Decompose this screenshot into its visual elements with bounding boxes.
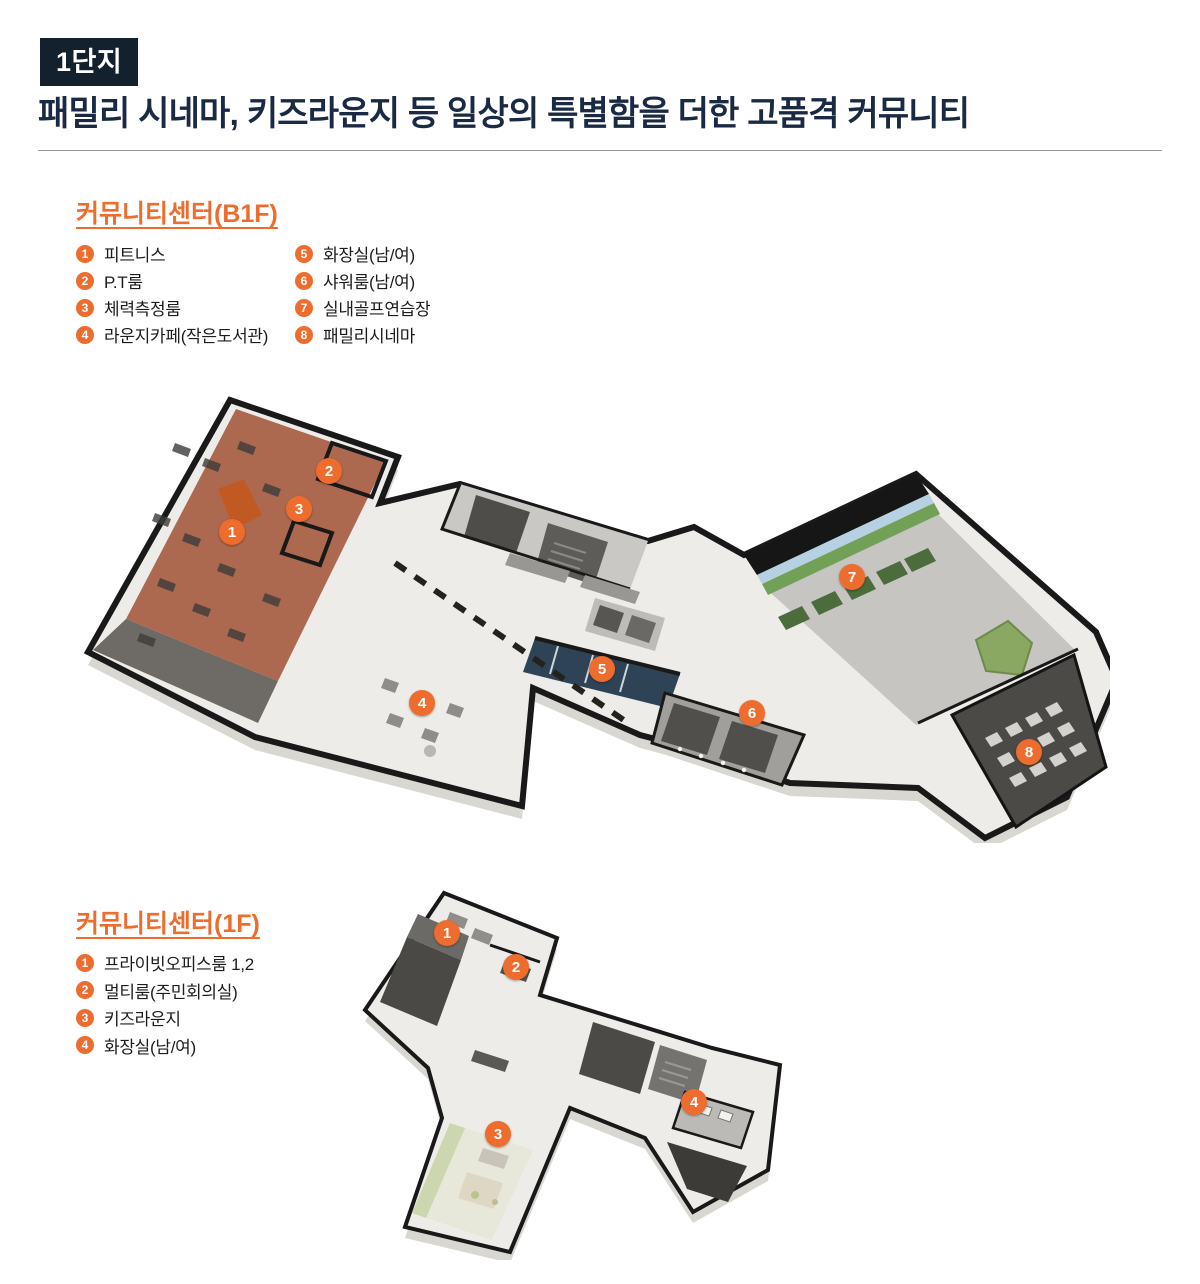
b1f-marker-layer: 12345678 [80,393,1110,843]
b1f-plan-marker-4: 4 [409,690,435,716]
b1f-legend-item-8: 8 패밀리시네마 [295,321,430,348]
divider [38,150,1162,151]
page-title: 패밀리 시네마, 키즈라운지 등 일상의 특별함을 더한 고품격 커뮤니티 [38,86,969,135]
b1f-plan-marker-7: 7 [839,564,865,590]
b1f-legend-label-3: 체력측정룸 [104,295,181,320]
f1-legend-item-1: 1 프라이빗오피스룸 1,2 [76,949,254,977]
b1f-plan-marker-6: 6 [739,700,765,726]
b1f-legend-number-2: 2 [76,272,94,290]
b1f-legend-item-3: 3 체력측정룸 [76,294,295,321]
b1f-legend-item-6: 6 샤워룸(남/여) [295,267,430,294]
f1-legend-number-1: 1 [76,954,94,972]
b1f-legend-number-3: 3 [76,299,94,317]
b1f-floorplan: 12345678 [80,393,1110,843]
b1f-legend-label-8: 패밀리시네마 [323,322,415,347]
b1f-legend-number-6: 6 [295,272,313,290]
b1f-legend: 1 피트니스 2 P.T룸 3 체력측정룸 4 라운지카페(작은도서관) 5 화… [76,240,430,348]
b1f-section-heading: 커뮤니티센터(B1F) [76,194,278,230]
b1f-plan-marker-1: 1 [219,519,245,545]
f1-floorplan: 1234 [355,880,800,1260]
f1-legend-label-2: 멀티룸(주민회의실) [104,978,237,1003]
f1-marker-layer: 1234 [355,880,800,1260]
f1-legend-label-4: 화장실(남/여) [104,1033,196,1058]
f1-legend: 1 프라이빗오피스룸 1,2 2 멀티룸(주민회의실) 3 키즈라운지 4 화장… [76,949,254,1059]
f1-plan-marker-4: 4 [681,1089,707,1115]
f1-plan-marker-3: 3 [485,1121,511,1147]
b1f-legend-number-8: 8 [295,326,313,344]
b1f-legend-item-5: 5 화장실(남/여) [295,240,430,267]
b1f-plan-marker-2: 2 [316,458,342,484]
b1f-legend-item-2: 2 P.T룸 [76,267,295,294]
b1f-legend-label-5: 화장실(남/여) [323,241,415,266]
b1f-legend-number-1: 1 [76,245,94,263]
f1-legend-item-2: 2 멀티룸(주민회의실) [76,977,254,1005]
b1f-legend-item-4: 4 라운지카페(작은도서관) [76,321,295,348]
b1f-legend-item-7: 7 실내골프연습장 [295,294,430,321]
f1-section-heading: 커뮤니티센터(1F) [76,904,260,940]
b1f-legend-label-2: P.T룸 [104,268,143,293]
f1-legend-number-2: 2 [76,981,94,999]
f1-legend-label-3: 키즈라운지 [104,1005,181,1030]
b1f-legend-label-6: 샤워룸(남/여) [323,268,415,293]
b1f-plan-marker-5: 5 [589,656,615,682]
b1f-legend-label-7: 실내골프연습장 [323,295,430,320]
page: 1단지 패밀리 시네마, 키즈라운지 등 일상의 특별함을 더한 고품격 커뮤니… [0,0,1200,1284]
complex-badge: 1단지 [40,38,138,86]
b1f-plan-marker-3: 3 [286,496,312,522]
b1f-legend-label-4: 라운지카페(작은도서관) [104,322,268,347]
f1-legend-number-4: 4 [76,1036,94,1054]
f1-legend-item-3: 3 키즈라운지 [76,1004,254,1032]
f1-plan-marker-1: 1 [434,920,460,946]
b1f-legend-number-4: 4 [76,326,94,344]
b1f-legend-label-1: 피트니스 [104,241,165,266]
b1f-legend-number-5: 5 [295,245,313,263]
f1-plan-marker-2: 2 [503,954,529,980]
f1-legend-item-4: 4 화장실(남/여) [76,1032,254,1060]
b1f-plan-marker-8: 8 [1016,739,1042,765]
f1-legend-label-1: 프라이빗오피스룸 1,2 [104,950,254,975]
b1f-legend-number-7: 7 [295,299,313,317]
f1-legend-number-3: 3 [76,1009,94,1027]
b1f-legend-item-1: 1 피트니스 [76,240,295,267]
